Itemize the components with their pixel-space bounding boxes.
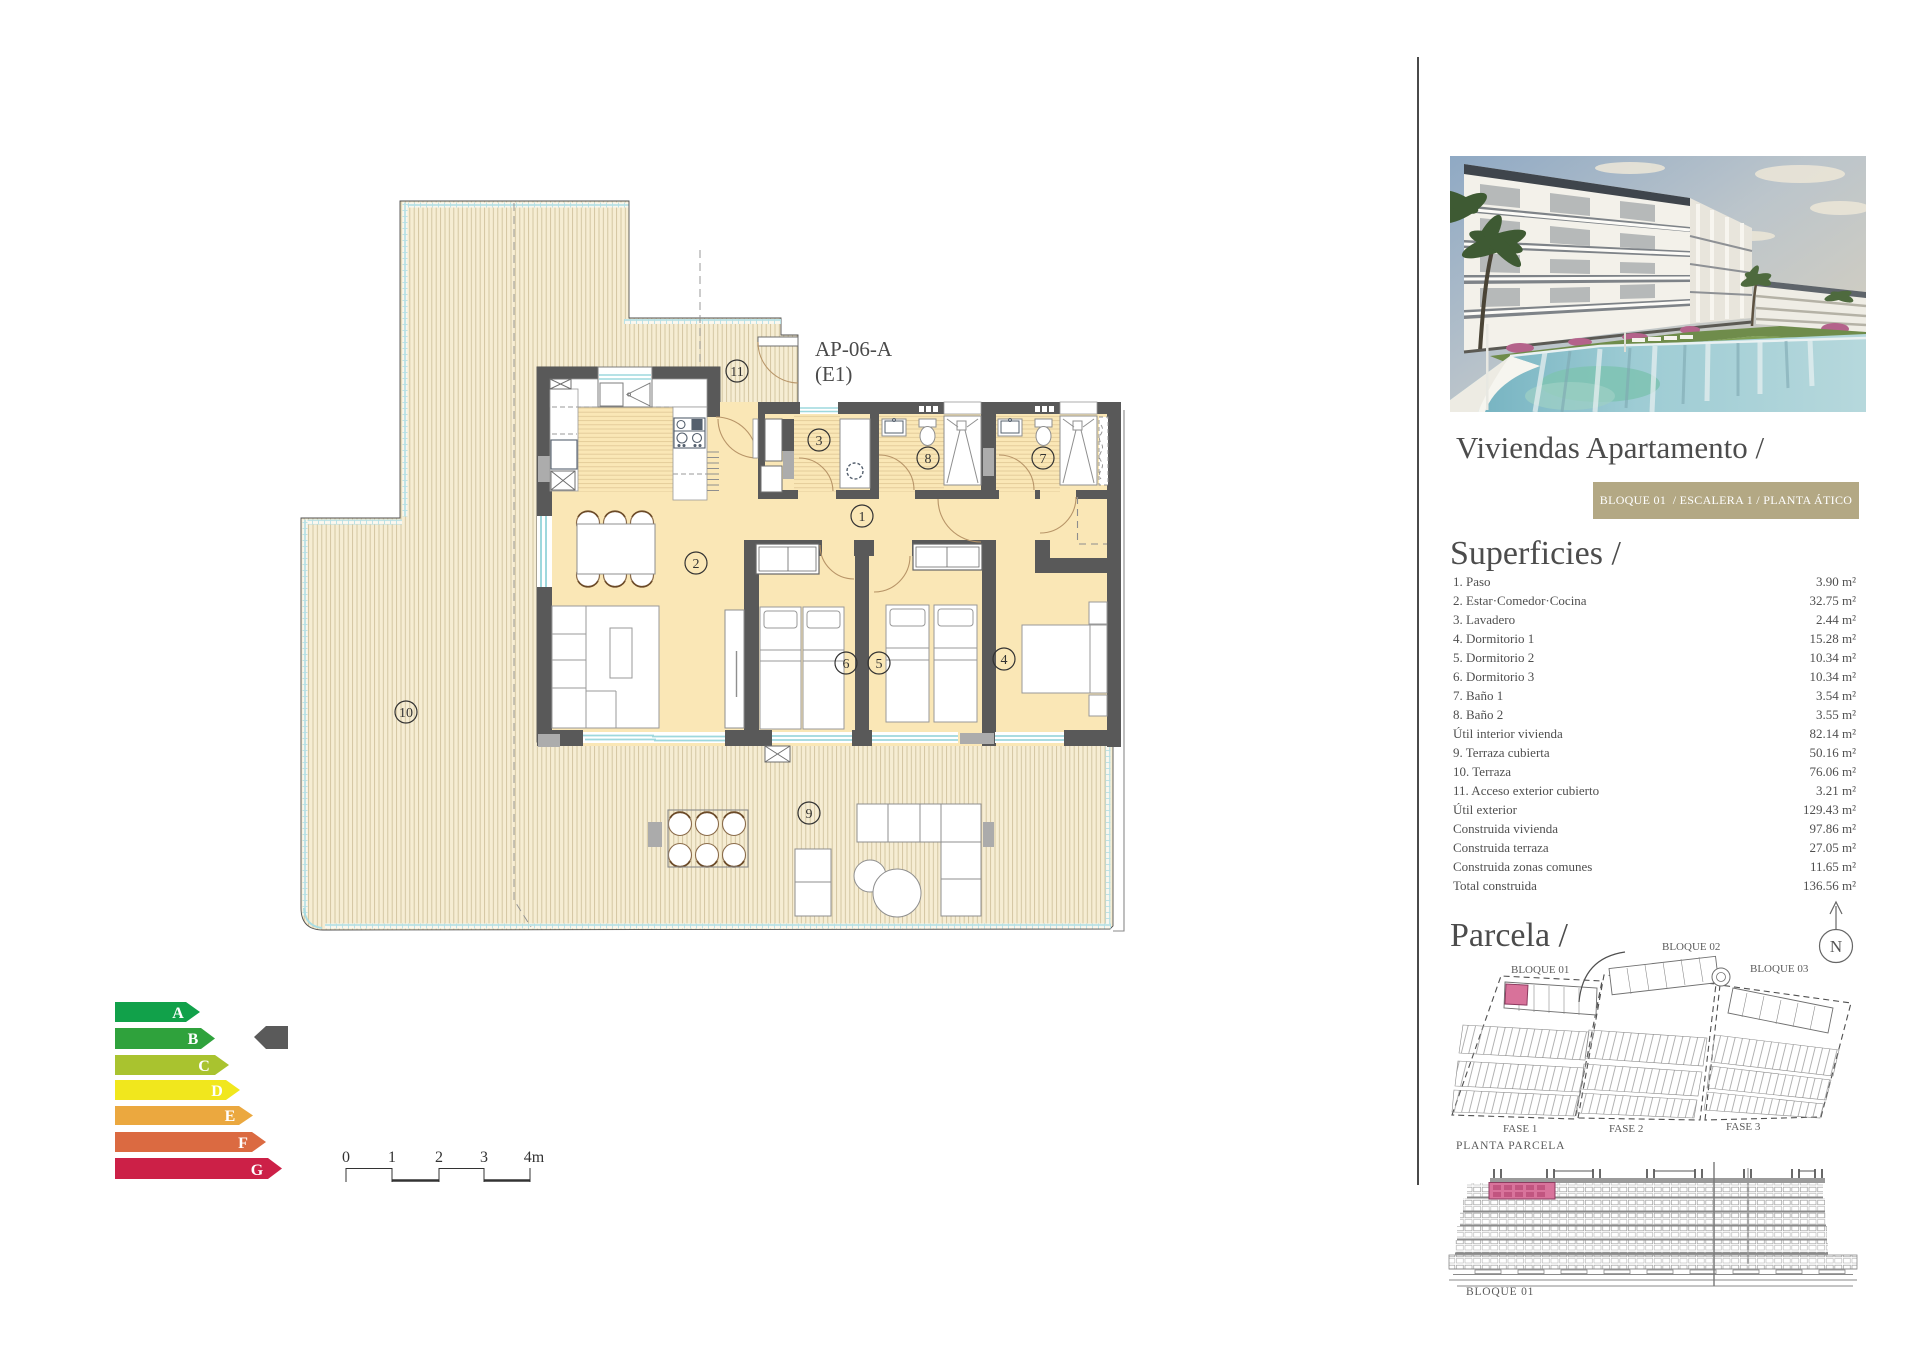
svg-text:2: 2	[435, 1149, 443, 1166]
svg-text:7: 7	[1040, 452, 1047, 467]
svg-text:5: 5	[876, 657, 883, 672]
svg-text:FASE 2: FASE 2	[1609, 1123, 1643, 1135]
svg-text:BLOQUE 01: BLOQUE 01	[1511, 964, 1569, 976]
svg-text:E: E	[225, 1108, 236, 1125]
svg-text:11: 11	[730, 365, 743, 380]
svg-text:8: 8	[925, 452, 932, 467]
svg-text:B: B	[188, 1031, 199, 1048]
svg-text:D: D	[211, 1083, 223, 1100]
svg-text:FASE 3: FASE 3	[1726, 1121, 1761, 1133]
svg-text:9: 9	[806, 807, 813, 822]
svg-text:BLOQUE 02: BLOQUE 02	[1662, 941, 1720, 953]
svg-text:10: 10	[399, 706, 413, 721]
svg-text:4: 4	[1001, 653, 1008, 668]
svg-text:(E1): (E1)	[815, 362, 852, 386]
svg-text:C: C	[198, 1058, 210, 1075]
svg-text:AP-06-A: AP-06-A	[815, 337, 893, 361]
svg-text:3: 3	[816, 434, 823, 449]
svg-text:A: A	[172, 1005, 184, 1022]
svg-text:6: 6	[843, 657, 850, 672]
svg-text:FASE 1: FASE 1	[1503, 1123, 1537, 1135]
svg-text:0: 0	[342, 1149, 350, 1166]
svg-text:4m: 4m	[524, 1149, 545, 1166]
svg-text:2: 2	[693, 557, 700, 572]
svg-text:F: F	[238, 1135, 248, 1152]
svg-text:1: 1	[388, 1149, 396, 1166]
svg-text:1: 1	[859, 510, 866, 525]
svg-text:BLOQUE 03: BLOQUE 03	[1750, 963, 1809, 975]
svg-text:G: G	[251, 1162, 264, 1179]
svg-text:3: 3	[480, 1149, 488, 1166]
